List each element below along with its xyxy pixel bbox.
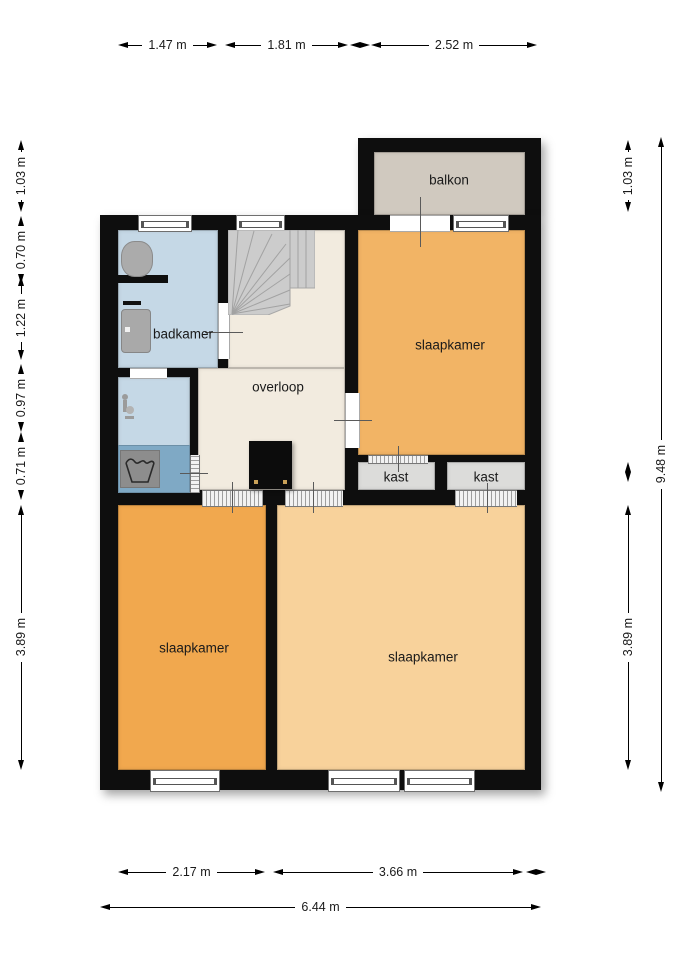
badkamer-shower-door xyxy=(130,368,167,379)
room-label-balkon: balkon xyxy=(429,173,469,188)
arrow-left-icon xyxy=(118,869,128,875)
dimension-bottom-1: 2.17 m xyxy=(118,866,265,878)
room-label-slaapkamer-top: slaapkamer xyxy=(415,338,485,353)
arrow-down-icon xyxy=(18,422,24,432)
door-tick xyxy=(313,482,314,513)
arrow-down-icon xyxy=(625,472,631,482)
arrow-right-icon xyxy=(531,904,541,910)
floor-plan: balkon badkamer overloop slaapkamer kast… xyxy=(0,0,679,960)
kast-right-door xyxy=(455,490,517,507)
window xyxy=(150,770,220,792)
dimension-top-2: 1.81 m xyxy=(225,39,348,51)
dimension-left-4: 0.97 m xyxy=(14,364,28,428)
dimension-bottom-total: 6.44 m xyxy=(100,901,541,913)
dimension-right-2: 3.89 m xyxy=(621,505,635,770)
window xyxy=(328,770,400,792)
dimension-left-6: 3.89 m xyxy=(14,505,28,770)
arrow-right-icon xyxy=(536,869,546,875)
dimension-left-3: 1.22 m xyxy=(14,276,28,360)
shower-room-door xyxy=(190,455,200,493)
arrow-down-icon xyxy=(625,202,631,212)
dimension-right-small xyxy=(625,462,631,482)
room-label-kast-right: kast xyxy=(474,470,499,485)
dimension-top-small xyxy=(350,39,370,51)
shower-tap-icon xyxy=(119,392,137,422)
dimension-top-1: 1.47 m xyxy=(118,39,217,51)
arrow-left-icon xyxy=(526,869,536,875)
arrow-up-icon xyxy=(625,140,631,150)
window xyxy=(453,215,509,232)
dimension-right-1: 1.03 m xyxy=(621,140,635,212)
arrow-up-icon xyxy=(18,432,24,442)
door-tick xyxy=(232,482,233,513)
arrow-up-icon xyxy=(18,364,24,374)
slaapkamer-bottom-right-door xyxy=(285,490,343,507)
dimension-left-1: 1.03 m xyxy=(14,140,28,212)
arrow-up-icon xyxy=(18,505,24,515)
washing-machine-icon xyxy=(120,450,160,488)
arrow-up-icon xyxy=(625,462,631,472)
arrow-left-icon xyxy=(371,42,381,48)
room-slaapkamer-bottom-left xyxy=(118,505,266,770)
shelf-icon xyxy=(123,301,141,305)
arrow-left-icon xyxy=(118,42,128,48)
dimension-top-3: 2.52 m xyxy=(371,39,537,51)
room-label-slaapkamer-bottom-right: slaapkamer xyxy=(388,650,458,665)
arrow-up-icon xyxy=(658,137,664,147)
dimension-left-5: 0.71 m xyxy=(14,432,28,500)
arrow-right-icon xyxy=(338,42,348,48)
window xyxy=(404,770,475,792)
chimney-icon xyxy=(249,441,292,489)
arrow-right-icon xyxy=(360,42,370,48)
room-label-kast-left: kast xyxy=(384,470,409,485)
arrow-down-icon xyxy=(18,760,24,770)
door-tick xyxy=(487,483,488,513)
room-label-overloop: overloop xyxy=(252,380,304,395)
arrow-down-icon xyxy=(18,350,24,360)
dimension-left-2: 0.70 m xyxy=(14,216,28,272)
room-label-badkamer: badkamer xyxy=(153,327,213,342)
dimension-bottom-2: 3.66 m xyxy=(273,866,523,878)
arrow-right-icon xyxy=(527,42,537,48)
door-tick xyxy=(334,420,372,421)
door-tick xyxy=(398,446,399,472)
room-label-slaapkamer-bottom-left: slaapkamer xyxy=(159,641,229,656)
arrow-down-icon xyxy=(18,490,24,500)
arrow-right-icon xyxy=(513,869,523,875)
dimension-bottom-small xyxy=(526,866,546,878)
arrow-right-icon xyxy=(255,869,265,875)
arrow-up-icon xyxy=(625,505,631,515)
arrow-up-icon xyxy=(18,276,24,286)
stairs-icon xyxy=(228,230,315,315)
dimension-right-total: 9.48 m xyxy=(654,137,668,792)
toilet-icon xyxy=(121,241,153,277)
room-slaapkamer-bottom-right xyxy=(277,505,525,770)
arrow-down-icon xyxy=(658,782,664,792)
door-tick xyxy=(420,197,421,247)
sink-icon xyxy=(121,309,151,353)
arrow-down-icon xyxy=(18,202,24,212)
arrow-down-icon xyxy=(625,760,631,770)
door-tick xyxy=(180,473,208,474)
arrow-left-icon xyxy=(273,869,283,875)
arrow-up-icon xyxy=(18,140,24,150)
window xyxy=(138,215,192,232)
arrow-left-icon xyxy=(100,904,110,910)
arrow-right-icon xyxy=(207,42,217,48)
arrow-up-icon xyxy=(18,216,24,226)
arrow-left-icon xyxy=(350,42,360,48)
arrow-left-icon xyxy=(225,42,235,48)
